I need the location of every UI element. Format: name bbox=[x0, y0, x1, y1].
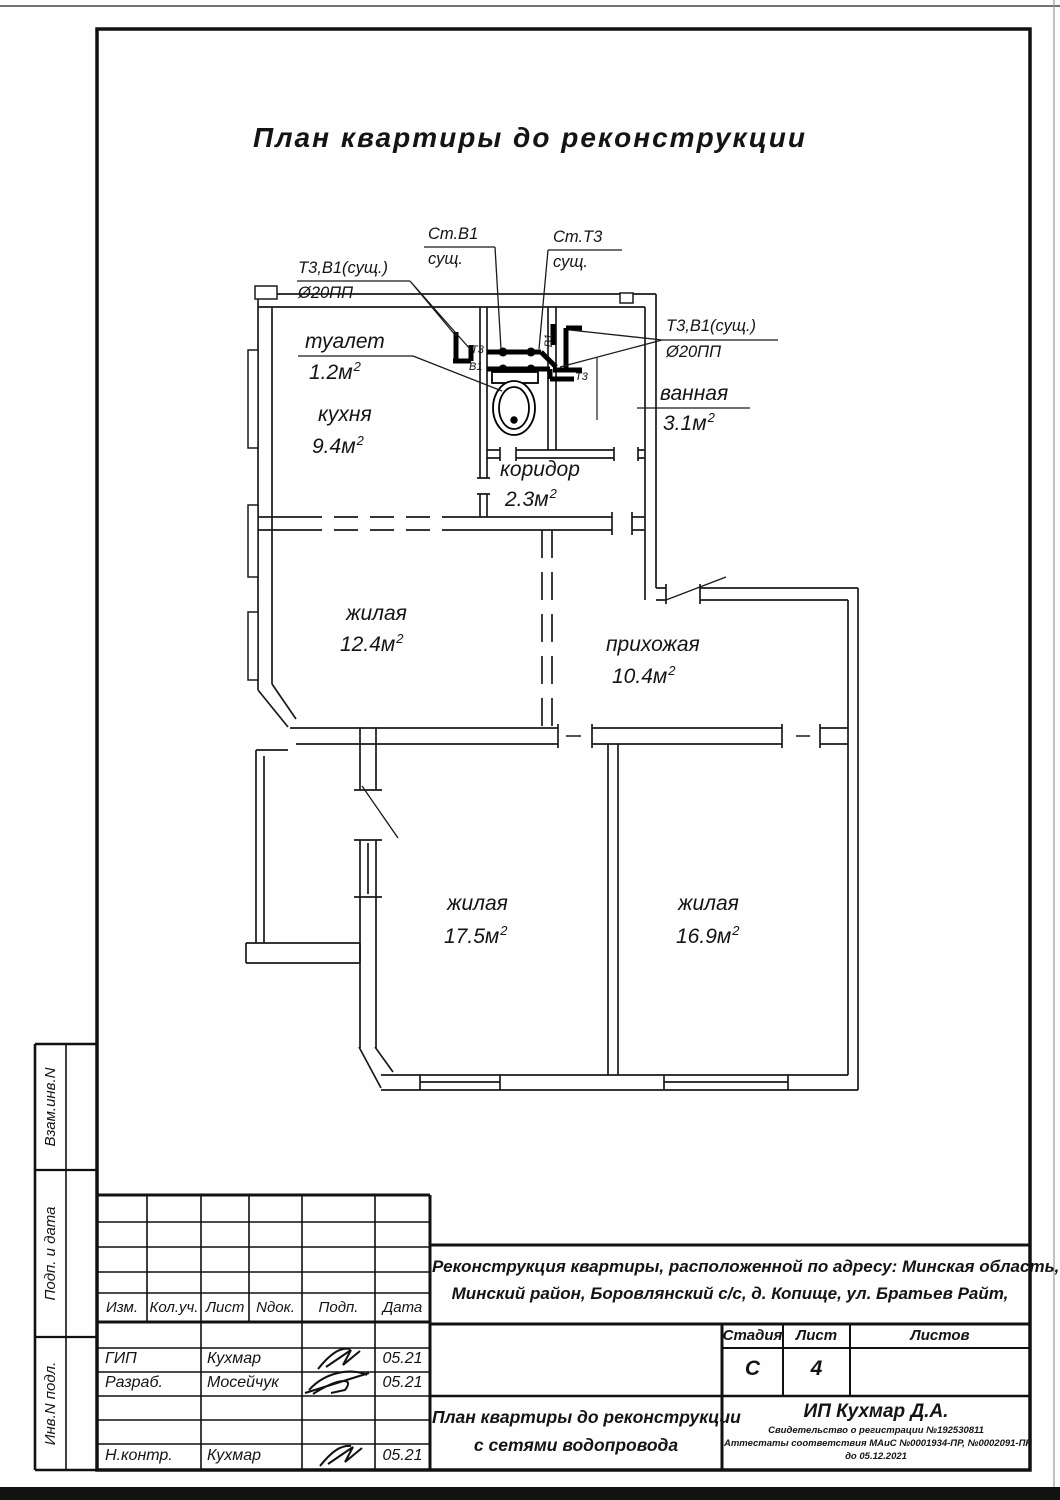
side-label-podp: Подп. и дата bbox=[38, 1172, 64, 1335]
room-label-toilet: туалет bbox=[305, 331, 385, 352]
pipes-right-label-2: Ø20ПП bbox=[666, 344, 721, 361]
pipe-tag-t3: Т3 bbox=[471, 345, 484, 356]
pipe-tag-t3-branch: Т3 bbox=[575, 372, 588, 383]
room-name: прихожая bbox=[606, 633, 700, 656]
room-area-kitchen: 9.4м2 bbox=[312, 436, 364, 457]
room-label-living3: жилая bbox=[678, 893, 739, 914]
room-area-living2: 17.5м2 bbox=[444, 926, 508, 947]
tb-col-list: Лист bbox=[201, 1300, 249, 1315]
sheets-header: Листов bbox=[850, 1328, 1030, 1343]
room-area-bath: 3.1м2 bbox=[663, 413, 715, 434]
firm-cert-line3: до 05.12.2021 bbox=[724, 1452, 1028, 1462]
room-area-hallway: 10.4м2 bbox=[612, 666, 676, 687]
project-address-line2: Минский район, Боровлянский с/с, д. Копи… bbox=[432, 1285, 1028, 1302]
room-label-kitchen: кухня bbox=[318, 404, 372, 425]
pipe-tag-v1-riser: В1 bbox=[544, 334, 555, 347]
room-area-living1: 12.4м2 bbox=[340, 634, 404, 655]
room-area: 16.9м bbox=[676, 925, 731, 948]
sup-2: 2 bbox=[732, 923, 739, 938]
pipes-right-label-1: Т3,В1(сущ.) bbox=[666, 318, 756, 335]
tb-col-data: Дата bbox=[375, 1300, 430, 1315]
tb-name-nkontr: Кухмар bbox=[207, 1448, 261, 1464]
signature-gip bbox=[318, 1349, 360, 1369]
room-area-toilet: 1.2м2 bbox=[309, 362, 361, 383]
room-label-living1: жилая bbox=[346, 603, 407, 624]
doc-title-line1: План квартиры до реконструкции bbox=[432, 1409, 720, 1427]
pipes-left-label-2: Ø20ПП bbox=[298, 285, 353, 302]
tb-col-izm: Изм. bbox=[97, 1300, 147, 1315]
door-leaf-lines bbox=[362, 577, 726, 838]
pipe-tag-v1: В1 bbox=[469, 362, 482, 373]
stage-header: Стадия bbox=[722, 1328, 783, 1343]
riser-v1-label-2: сущ. bbox=[428, 251, 463, 268]
room-name: кухня bbox=[318, 403, 372, 426]
signature-razrab bbox=[305, 1372, 369, 1394]
side-label-inv: Инв.N подл. bbox=[38, 1339, 64, 1468]
room-area-corridor: 2.3м2 bbox=[505, 489, 557, 510]
doc-title-line2: с сетями водопровода bbox=[432, 1437, 720, 1455]
firm-cert-line2: Аттестаты соответствия МАиС №0001934-ПР,… bbox=[724, 1439, 1028, 1449]
room-area: 12.4м bbox=[340, 633, 395, 656]
sup-2: 2 bbox=[396, 631, 403, 646]
tb-col-ndok: Nдок. bbox=[249, 1300, 302, 1315]
sheet-value: 4 bbox=[783, 1358, 850, 1379]
room-area: 9.4м bbox=[312, 435, 356, 458]
room-name: ванная bbox=[660, 382, 728, 405]
signature-nkontr bbox=[320, 1446, 362, 1466]
room-name: коридор bbox=[500, 458, 580, 481]
pipes-left-label-1: Т3,В1(сущ.) bbox=[298, 260, 388, 277]
room-name: жилая bbox=[447, 892, 508, 915]
tb-col-podp: Подп. bbox=[302, 1300, 375, 1315]
side-label-vzam: Взам.инв.N bbox=[38, 1046, 64, 1168]
room-area: 2.3м bbox=[505, 488, 549, 511]
tb-name-razrab: Мосейчук bbox=[207, 1375, 279, 1391]
sheet-header: Лист bbox=[783, 1328, 850, 1343]
sup-2: 2 bbox=[354, 359, 361, 374]
stage-value: С bbox=[722, 1358, 783, 1379]
tb-role-razrab: Разраб. bbox=[105, 1375, 163, 1391]
room-name: туалет bbox=[305, 330, 385, 353]
sup-2: 2 bbox=[668, 663, 675, 678]
room-label-living2: жилая bbox=[447, 893, 508, 914]
tb-col-koluch: Кол.уч. bbox=[147, 1300, 201, 1315]
tb-role-nkontr: Н.контр. bbox=[105, 1448, 173, 1464]
riser-t3-label-2: сущ. bbox=[553, 254, 588, 271]
tb-name-gip: Кухмар bbox=[207, 1351, 261, 1367]
toilet-fixture bbox=[492, 372, 538, 435]
firm-name: ИП Кухмар Д.А. bbox=[724, 1402, 1028, 1421]
room-name: жилая bbox=[678, 892, 739, 915]
room-area: 1.2м bbox=[309, 361, 353, 384]
room-label-bath: ванная bbox=[660, 383, 728, 404]
room-area-living3: 16.9м2 bbox=[676, 926, 740, 947]
signatures bbox=[305, 1349, 369, 1466]
project-address-line1: Реконструкция квартиры, расположенной по… bbox=[432, 1258, 1028, 1275]
drawing-sheet: План квартиры до реконструкции туалет 1.… bbox=[0, 0, 1060, 1500]
riser-v1-label-1: Ст.В1 bbox=[428, 226, 478, 243]
room-name: жилая bbox=[346, 602, 407, 625]
room-area: 10.4м bbox=[612, 665, 667, 688]
tb-role-gip: ГИП bbox=[105, 1351, 137, 1367]
room-area: 3.1м bbox=[663, 412, 707, 435]
room-area: 17.5м bbox=[444, 925, 499, 948]
room-label-corridor: коридор bbox=[500, 459, 580, 480]
tb-date-gip: 05.21 bbox=[375, 1351, 430, 1367]
sup-2: 2 bbox=[550, 486, 557, 501]
dashed-partition bbox=[542, 530, 552, 728]
firm-cert-line1: Свидетельство о регистрации №192530811 bbox=[724, 1426, 1028, 1436]
tb-date-nkontr: 05.21 bbox=[375, 1448, 430, 1464]
tb-date-razrab: 05.21 bbox=[375, 1375, 430, 1391]
sup-2: 2 bbox=[708, 410, 715, 425]
sup-2: 2 bbox=[500, 923, 507, 938]
riser-t3-label-1: Ст.Т3 bbox=[553, 229, 602, 246]
sup-2: 2 bbox=[357, 433, 364, 448]
drawing-title: План квартиры до реконструкции bbox=[253, 124, 773, 152]
room-label-hallway: прихожая bbox=[606, 634, 700, 655]
